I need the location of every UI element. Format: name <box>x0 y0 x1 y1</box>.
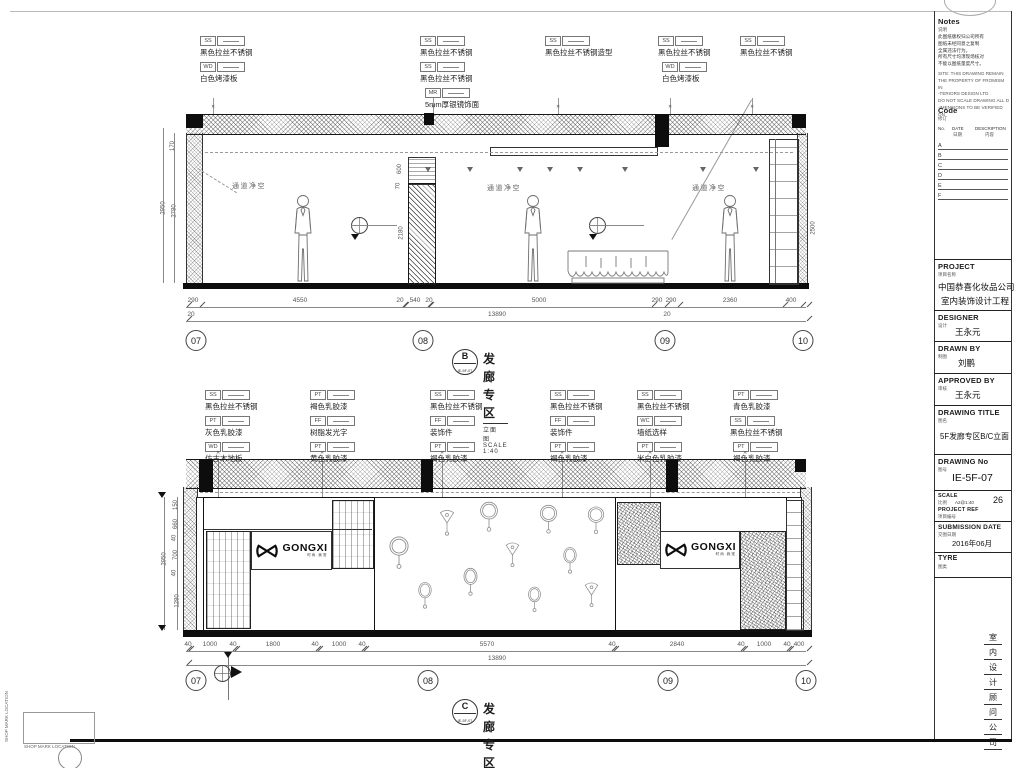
door-transom <box>408 157 436 185</box>
grid-bubble: 08 <box>418 670 439 691</box>
material-tag: SS 黑色拉丝不锈钢 <box>200 36 253 58</box>
material-code: SS <box>637 390 653 400</box>
elevation-ref: IE-5F-07 <box>453 719 477 723</box>
dim-value: 700 <box>173 550 179 560</box>
leader-target-mark: ✕ <box>216 450 220 456</box>
material-ref-box <box>567 416 595 426</box>
material-tag: SS 黑色拉丝不锈钢 <box>420 36 473 58</box>
material-code: SS <box>205 390 221 400</box>
designer-label: DESIGNER <box>938 313 979 322</box>
tag-boxes: SS <box>550 390 603 400</box>
tag-boxes: PT <box>733 442 778 452</box>
dim-tick <box>807 302 813 308</box>
shop-mark-label-vertical: SHOP MARK LOCATION <box>4 691 9 742</box>
material-tag: PT 灰色乳胶漆 <box>205 416 250 438</box>
dim-value: 40 <box>737 641 744 648</box>
material-ref-box <box>562 36 590 46</box>
material-code: SS <box>420 36 436 46</box>
material-code: SS <box>200 36 216 46</box>
designer-name: 王永元 <box>955 326 981 338</box>
dim-line-b2 <box>186 321 806 322</box>
dim-value: 1000 <box>203 641 217 648</box>
gongxi-logo-box-right: GONGXI 时尚.我宠 <box>660 531 740 569</box>
project-ref-sub: 项目编号 <box>938 514 956 520</box>
tag-boxes: WD <box>662 62 707 72</box>
material-tag: SS 黑色拉丝不锈钢 <box>205 390 258 412</box>
dim-value: 600 <box>397 164 403 174</box>
material-ref-box <box>447 442 475 452</box>
material-code: PT <box>310 390 326 400</box>
elevation-letter: B <box>453 351 477 361</box>
downlight-icon <box>425 167 431 172</box>
tag-boxes: MR <box>425 88 479 98</box>
material-label: 黑色拉丝不锈钢 <box>205 401 258 412</box>
tag-boxes: PT <box>550 442 595 452</box>
material-label: 黑色拉丝不锈钢 <box>430 401 483 412</box>
material-label: 青色乳胶漆 <box>733 401 778 412</box>
gongxi-bow-icon <box>664 542 688 558</box>
wall-b-left <box>186 133 203 283</box>
submission-date-label: SUBMISSION DATE <box>938 524 1001 531</box>
column-c-end <box>795 459 806 472</box>
scale-sub: 比例 <box>938 500 947 506</box>
vdim-line-c-inner <box>177 497 178 630</box>
elevation-title-circle: C IE-5F-07 <box>452 699 478 725</box>
material-code: FF <box>310 416 326 426</box>
clearance-label: 通道净空 <box>692 183 726 193</box>
approved-by-name: 王永元 <box>955 389 981 401</box>
material-label: 树脂发光字 <box>310 427 355 438</box>
material-tag: PT 褐色乳胶漆 <box>310 390 355 412</box>
code-col-desc-zh: 内容 <box>985 132 994 138</box>
material-ref-box <box>222 390 250 400</box>
hand-mirror-icon <box>386 535 412 571</box>
material-label: 黑色拉丝不锈钢造型 <box>545 47 613 58</box>
material-label: 装饰件 <box>550 427 595 438</box>
material-ref-box <box>679 62 707 72</box>
notes-zh: 此图纸版权归公司所有图纸未经同意之复制全属违法行为。所有尺寸均须现场核对不能以图… <box>938 34 1008 68</box>
material-label: 褐色乳胶漆 <box>310 401 355 412</box>
material-code: SS <box>430 390 446 400</box>
elevation-ref: IE-5F-07 <box>453 369 477 373</box>
grid-bubble: 10 <box>796 670 817 691</box>
material-ref-box <box>675 36 703 46</box>
dim-value: 660 <box>173 519 179 529</box>
project-ref-label: PROJECT REF <box>938 507 979 513</box>
material-label: 黑色拉丝不锈钢 <box>740 47 793 58</box>
drawn-by-sub: 制图 <box>938 354 947 360</box>
dim-value: 400 <box>794 641 805 648</box>
elevation-title-text: 发廊专区 立面图 SCALE 1:40 <box>483 700 508 768</box>
code-col-desc: DESCRIPTION <box>975 126 1006 131</box>
sheet-bottom-border <box>70 739 1012 742</box>
downlight-icon <box>467 167 473 172</box>
tag-boxes: SS <box>420 62 473 72</box>
material-label: 黑色拉丝不锈钢 <box>420 47 473 58</box>
scale-label: SCALE 1:40 <box>483 443 508 455</box>
material-ref-box <box>327 416 355 426</box>
material-ref-box <box>750 390 778 400</box>
revision-row: C <box>938 160 1008 170</box>
dim-value: 70 <box>395 183 401 190</box>
material-label: 黑色拉丝不锈钢 <box>730 427 783 438</box>
downlight-icon <box>547 167 553 172</box>
code-sub: 修订 <box>938 116 947 122</box>
dim-value: 5000 <box>532 297 546 304</box>
material-code: WD <box>200 62 216 72</box>
vdim-line-b-outer <box>163 128 164 283</box>
dim-value: 20 <box>425 297 432 304</box>
plan-type-label: 立面图 <box>483 428 497 443</box>
dim-value: 40 <box>358 641 365 648</box>
column-b-mid <box>655 114 669 147</box>
dim-value: 400 <box>786 297 797 304</box>
dim-value: 290 <box>188 297 199 304</box>
code-col-date: DATE <box>952 126 964 131</box>
tag-boxes: SS <box>430 390 483 400</box>
material-ref-box <box>654 390 682 400</box>
note-line: 此图纸版权归公司所有 <box>938 34 1008 41</box>
material-tag: SS 黑色拉丝不锈钢 <box>730 416 783 438</box>
dim-tick <box>807 660 813 666</box>
material-label: 黑色拉丝不锈钢 <box>658 47 711 58</box>
notes-sub: 说明 <box>938 27 947 33</box>
approved-by-label: APPROVED BY <box>938 376 995 385</box>
column-b-right <box>792 114 806 128</box>
type-sub: 图类 <box>938 564 947 570</box>
tag-boxes: SS <box>420 36 473 46</box>
elevation-title-name: 发廊专区 <box>483 352 498 420</box>
clearance-label: 通道净空 <box>232 181 266 191</box>
tag-boxes: FF <box>430 416 475 426</box>
company-character: 司 <box>984 735 1002 750</box>
material-label: 黑色拉丝不锈钢 <box>637 401 690 412</box>
dim-tick <box>807 316 813 322</box>
floral-panel-1 <box>617 502 661 565</box>
drawing-title-sub: 图名 <box>938 418 947 424</box>
material-tag: SS 黑色拉丝不锈钢造型 <box>545 36 613 58</box>
code-col-no: No. <box>938 126 945 131</box>
material-code: FF <box>430 416 446 426</box>
column-c-left <box>199 459 213 492</box>
dim-value: 1000 <box>332 641 346 648</box>
sheet-top-border <box>10 11 1012 12</box>
drawing-title-label: DRAWING TITLE <box>938 408 1000 417</box>
material-code: PT <box>733 390 749 400</box>
material-tag: PT 青色乳胶漆 <box>733 390 778 412</box>
column-b-left <box>186 114 203 128</box>
company-character: 公 <box>984 720 1002 735</box>
material-ref-box <box>447 416 475 426</box>
material-label: 黑色拉丝不锈钢 <box>550 401 603 412</box>
hand-mirror-icon <box>581 580 602 610</box>
material-tag: FF 树脂发光字 <box>310 416 355 438</box>
project-sub: 项目名称 <box>938 272 956 278</box>
material-code: SS <box>545 36 561 46</box>
material-code: SS <box>730 416 746 426</box>
dim-line-c2 <box>186 665 806 666</box>
material-tag: WD 白色烤漆板 <box>200 62 245 84</box>
material-ref-box <box>757 36 785 46</box>
material-ref-box <box>217 62 245 72</box>
dim-value: 20 <box>396 297 403 304</box>
shelving-b-right <box>769 139 799 285</box>
dim-value: 2500 <box>811 221 817 234</box>
company-character: 顾 <box>984 690 1002 705</box>
column-c-mid <box>421 459 433 492</box>
drawing-title-value: 5F发廊专区B/C立面 <box>940 431 1009 442</box>
dim-value: 1000 <box>757 641 771 648</box>
material-ref-box <box>327 390 355 400</box>
clearance-label: 通道净空 <box>487 183 521 193</box>
material-ref-box <box>654 442 682 452</box>
material-code: WC <box>637 416 653 426</box>
tag-boxes: PT <box>310 390 355 400</box>
tag-boxes: SS <box>637 390 690 400</box>
dim-line-c1 <box>186 651 806 652</box>
material-code: FF <box>550 416 566 426</box>
material-code: MR <box>425 88 441 98</box>
drawn-by-label: DRAWN BY <box>938 344 980 353</box>
hand-mirror-icon <box>414 580 436 612</box>
drawing-no-sub: 图号 <box>938 467 947 473</box>
gongxi-wordmark: GONGXI <box>691 543 736 552</box>
tag-boxes: WC <box>637 416 682 426</box>
project-name-line1: 中国恭喜化妆品公司 <box>938 281 1015 293</box>
material-ref-box <box>447 390 475 400</box>
dim-value: 5570 <box>480 641 494 648</box>
dim-value: 2840 <box>670 641 684 648</box>
leader-target-mark: ✕ <box>750 104 754 110</box>
drawing-no-value: IE-5F-07 <box>952 472 993 484</box>
dim-value: 4550 <box>293 297 307 304</box>
material-label: 装饰件 <box>430 427 475 438</box>
titleblock-right-border <box>1011 11 1012 740</box>
note-line: -TERIORS DESIGN LTD <box>938 91 1010 98</box>
hand-mirror-icon <box>477 500 501 534</box>
approved-by-sub: 审核 <box>938 386 947 392</box>
leader-target-mark: ✕ <box>668 104 672 110</box>
dim-value: 290 <box>652 297 663 304</box>
leader-target-mark: ✕ <box>320 450 324 456</box>
dim-value: 40 <box>229 641 236 648</box>
ceiling-dashed-line-c <box>200 492 800 493</box>
elevation-letter: C <box>453 701 477 711</box>
material-ref-box <box>437 62 465 72</box>
grid-bubble: 07 <box>186 330 207 351</box>
vdim-line-c-outer <box>164 497 165 630</box>
sofa <box>566 247 670 285</box>
tag-boxes: PT <box>310 442 355 452</box>
material-ref-box <box>222 416 250 426</box>
grid-bubble: 10 <box>793 330 814 351</box>
leader-target-mark: ✕ <box>440 450 444 456</box>
gongxi-bow-icon <box>255 543 279 559</box>
human-figure <box>286 193 320 285</box>
sheet-number: 26 <box>993 495 1003 505</box>
hand-mirror-icon <box>537 503 560 536</box>
grid-bubble: 08 <box>413 330 434 351</box>
material-tag: SS 黑色拉丝不锈钢 <box>420 62 473 84</box>
tag-boxes: WD <box>205 442 250 452</box>
hand-mirror-icon <box>436 508 458 538</box>
material-tag: WC 墙纸选样 <box>637 416 682 438</box>
material-tag: SS 黑色拉丝不锈钢 <box>637 390 690 412</box>
revision-row: A <box>938 140 1008 150</box>
revision-row: D <box>938 170 1008 180</box>
dim-value: 290 <box>666 297 677 304</box>
leader-target-mark: ✕ <box>211 104 215 110</box>
downlight-icon <box>517 167 523 172</box>
gongxi-logo-box-left: GONGXI 时尚.我宠 <box>251 531 332 570</box>
wood-plank-panel-1 <box>206 531 251 629</box>
company-character: 问 <box>984 705 1002 720</box>
ceiling-slab-c <box>186 459 806 489</box>
tag-boxes: PT <box>430 442 475 452</box>
note-line: 不能以图纸量度尺寸。 <box>938 61 1008 68</box>
elevation-title-sub: 立面图 SCALE 1:40 <box>483 423 508 455</box>
material-code: PT <box>205 416 221 426</box>
tag-boxes: SS <box>730 416 783 426</box>
dim-value: 20 <box>663 311 670 318</box>
grid-bubble: 07 <box>186 670 207 691</box>
shelving-b-divider <box>775 139 776 283</box>
note-line: THE PROPERTY OF FROMISM IN <box>938 78 1010 92</box>
dim-value: 1800 <box>266 641 280 648</box>
corner-circle <box>58 746 82 768</box>
type-label: TYRE <box>938 555 957 562</box>
tag-boxes: WD <box>200 62 245 72</box>
scale-value: A2@1:40 <box>955 500 974 505</box>
material-tag: SS 黑色拉丝不锈钢 <box>658 36 711 58</box>
tag-boxes: FF <box>310 416 355 426</box>
revision-row: E <box>938 180 1008 190</box>
material-label: 黑色拉丝不锈钢 <box>420 73 473 84</box>
company-character: 室 <box>984 630 1002 645</box>
leader-target-mark: ✕ <box>556 104 560 110</box>
note-line: SITE: THIS DRAWING REMAIN <box>938 71 1010 78</box>
level-leader <box>589 225 644 226</box>
tag-boxes: PT <box>637 442 682 452</box>
hand-mirror-icon <box>459 566 482 599</box>
material-tag: SS 黑色拉丝不锈钢 <box>740 36 793 58</box>
titleblock-left-border <box>934 11 935 740</box>
material-code: SS <box>658 36 674 46</box>
column-b-mid-small <box>424 113 434 125</box>
material-label: 灰色乳胶漆 <box>205 427 250 438</box>
column-c-right <box>666 459 678 492</box>
leader-target-mark: ✕ <box>648 450 652 456</box>
material-ref-box <box>747 416 775 426</box>
notes-label: Notes <box>938 17 960 26</box>
dim-tick <box>807 646 813 652</box>
material-code: SS <box>420 62 436 72</box>
dim-value: 2180 <box>399 226 405 239</box>
door-panel <box>408 183 436 285</box>
tag-boxes: SS <box>658 36 711 46</box>
code-label: Code <box>938 106 958 115</box>
level-marker-bottom <box>158 625 166 635</box>
binder-clip-decoration <box>944 0 996 16</box>
revision-row: F <box>938 190 1008 200</box>
level-leader <box>351 225 397 226</box>
hand-mirror-icon <box>502 540 523 570</box>
designer-sub: 设计 <box>938 323 947 329</box>
material-ref-box <box>567 390 595 400</box>
material-ref-box <box>217 36 245 46</box>
material-ref-box <box>654 416 682 426</box>
dim-value: 40 <box>783 641 790 648</box>
material-code: WD <box>662 62 678 72</box>
dim-value: 40 <box>311 641 318 648</box>
leader-target-mark: ✕ <box>560 450 564 456</box>
material-code: SS <box>550 390 566 400</box>
material-tag: SS 黑色拉丝不锈钢 <box>550 390 603 412</box>
material-ref-box <box>567 442 595 452</box>
dim-value: 170 <box>170 141 176 151</box>
material-ref-box <box>327 442 355 452</box>
dim-value: 13890 <box>488 655 506 662</box>
material-label: 白色烤漆板 <box>662 73 707 84</box>
material-tag: WD 白色烤漆板 <box>662 62 707 84</box>
material-ref-box <box>442 88 470 98</box>
shop-mark-box <box>23 712 95 744</box>
hand-mirror-icon <box>524 585 545 615</box>
project-label: PROJECT <box>938 262 975 271</box>
downlight-icon <box>577 167 583 172</box>
scale-label: SCALE <box>938 493 958 499</box>
material-tag: SS 黑色拉丝不锈钢 <box>430 390 483 412</box>
note-line: DO NOT SCALE DRAWING ALL D <box>938 98 1010 105</box>
company-character: 计 <box>984 675 1002 690</box>
tag-boxes: SS <box>200 36 253 46</box>
code-rows: ABCDEF <box>938 140 1008 200</box>
elevation-title-circle: B IE-5F-07 <box>452 349 478 375</box>
submission-date-value: 2016年06月 <box>952 538 992 549</box>
hand-mirror-icon <box>559 545 581 577</box>
dim-value: 13890 <box>488 311 506 318</box>
material-ref-box <box>437 36 465 46</box>
code-col-date-zh: 日期 <box>953 132 962 138</box>
dim-value: 540 <box>410 297 421 304</box>
company-character: 设 <box>984 660 1002 675</box>
shelving-c-right <box>786 500 804 631</box>
ceiling-slab-b <box>186 114 806 135</box>
material-label: 黑色拉丝不锈钢 <box>200 47 253 58</box>
hand-mirror-icon <box>585 505 607 536</box>
material-ref-box <box>222 442 250 452</box>
grid-bubble: 09 <box>658 670 679 691</box>
leader-target-mark: ✕ <box>431 104 435 110</box>
human-figure <box>516 193 550 285</box>
dim-value: 20 <box>187 311 194 318</box>
dim-value: 2360 <box>723 297 737 304</box>
tag-boxes: SS <box>205 390 258 400</box>
dim-value: 150 <box>173 500 179 510</box>
tag-boxes: FF <box>550 416 595 426</box>
material-code: SS <box>740 36 756 46</box>
vdim-line-b-inner <box>174 133 175 283</box>
material-label: 白色烤漆板 <box>200 73 245 84</box>
company-vertical-name: 室内设计顾问公司 <box>984 630 1002 750</box>
material-ref-box <box>750 442 778 452</box>
grid-bubble: 09 <box>655 330 676 351</box>
drawing-sheet: SS 黑色拉丝不锈钢 WD 白色烤漆板 SS <box>0 0 1024 768</box>
material-tag: FF 装饰件 <box>430 416 475 438</box>
level-triangle-icon <box>589 234 597 244</box>
leader-target-mark: ✕ <box>743 450 747 456</box>
level-triangle-icon <box>351 234 359 244</box>
